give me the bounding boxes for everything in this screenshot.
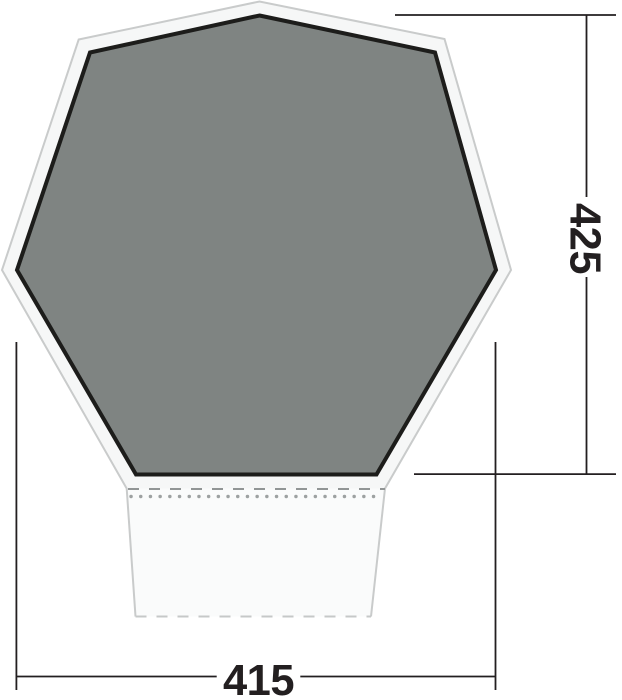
svg-text:415: 415 bbox=[223, 657, 294, 700]
svg-text:425: 425 bbox=[561, 203, 609, 274]
